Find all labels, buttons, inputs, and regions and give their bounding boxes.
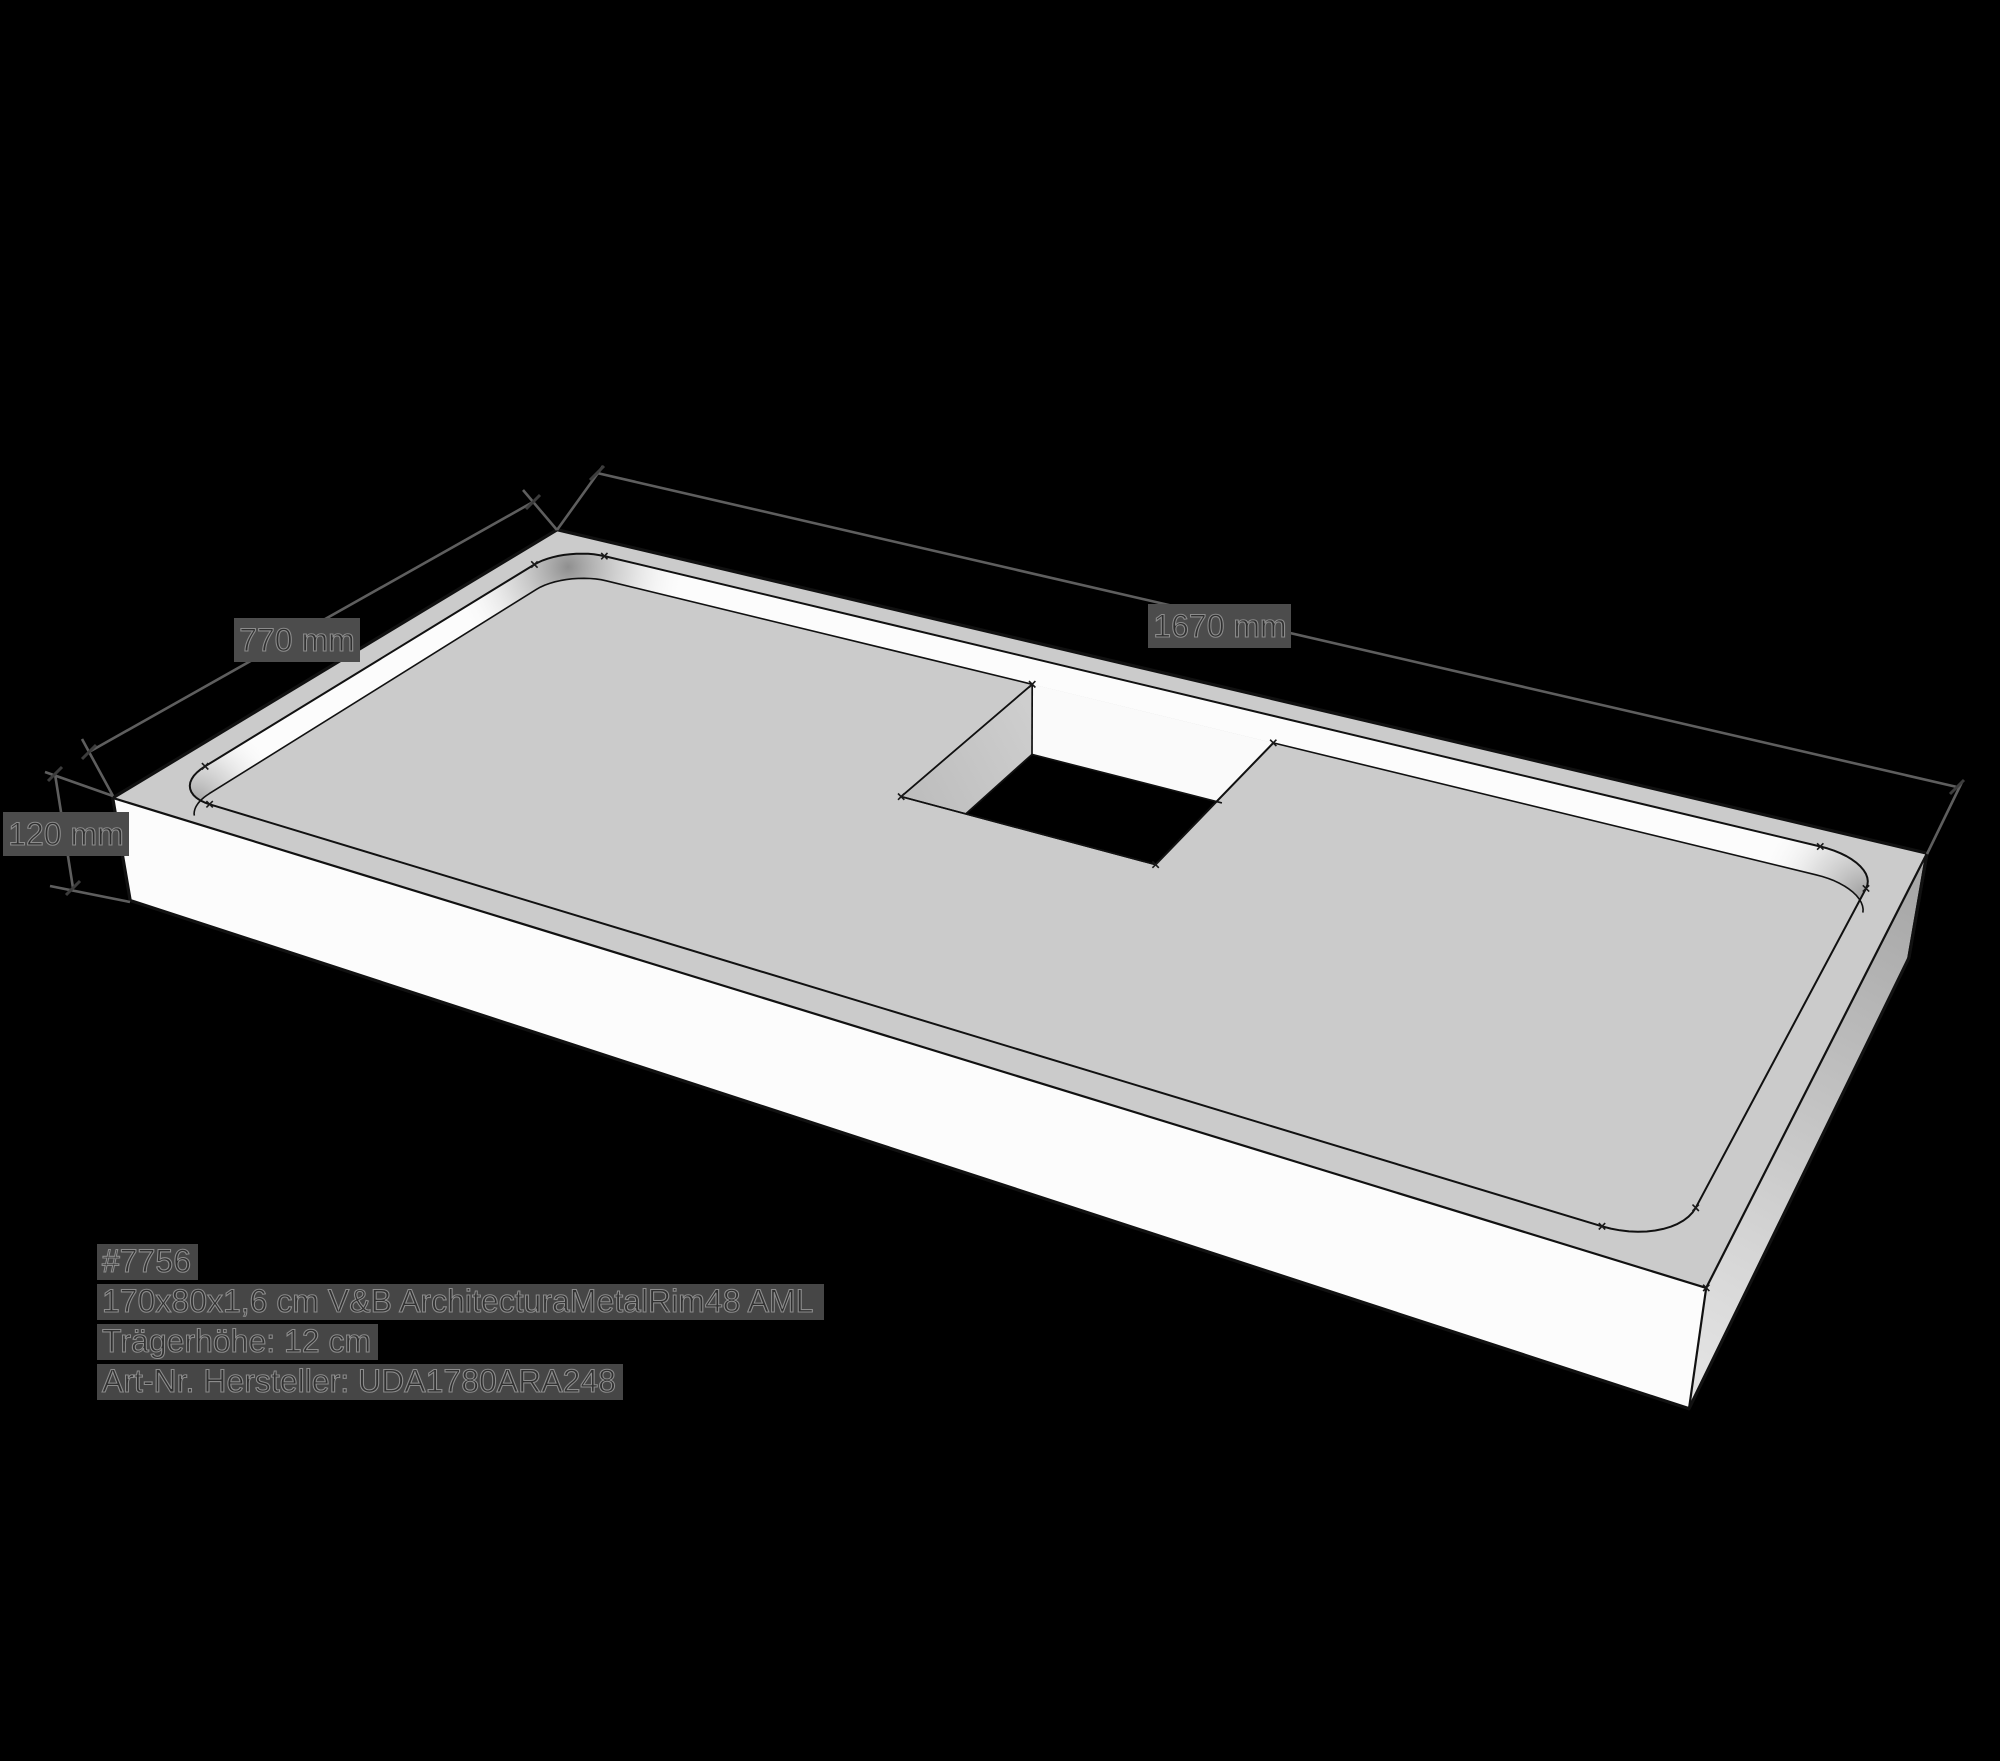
- svg-text:1670 mm: 1670 mm: [1153, 608, 1286, 644]
- svg-text:120 mm: 120 mm: [8, 816, 124, 852]
- svg-text:Trägerhöhe: 12 cm: Trägerhöhe: 12 cm: [102, 1323, 371, 1359]
- svg-text:770 mm: 770 mm: [239, 622, 355, 658]
- svg-text:#7756: #7756: [102, 1243, 191, 1279]
- svg-text:170x80x1,6 cm V&B Architectura: 170x80x1,6 cm V&B ArchitecturaMetalRim48…: [102, 1283, 813, 1319]
- svg-text:Art-Nr. Hersteller: UDA1780ARA: Art-Nr. Hersteller: UDA1780ARA248: [102, 1363, 616, 1399]
